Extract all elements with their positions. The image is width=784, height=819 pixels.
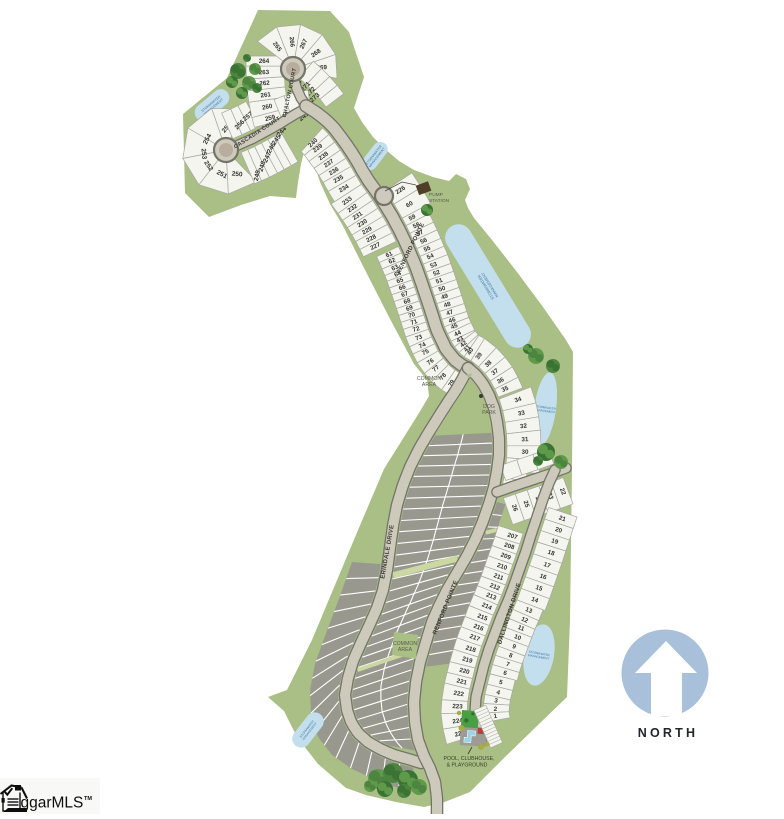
svg-text:STATION: STATION xyxy=(429,198,450,204)
svg-text:253: 253 xyxy=(200,148,208,160)
svg-text:31: 31 xyxy=(521,436,529,443)
svg-text:& PLAYGROUND: & PLAYGROUND xyxy=(447,763,488,769)
svg-text:PUMP: PUMP xyxy=(429,192,443,198)
svg-text:POOL, CLUBHOUSE,: POOL, CLUBHOUSE, xyxy=(443,756,494,762)
svg-text:223: 223 xyxy=(452,703,463,711)
svg-text:PARK: PARK xyxy=(482,410,496,416)
svg-text:AREA: AREA xyxy=(398,647,413,653)
svg-text:AREA: AREA xyxy=(422,382,437,388)
svg-text:266: 266 xyxy=(288,36,296,48)
svg-text:ggarMLS: ggarMLS xyxy=(21,795,84,812)
svg-text:261: 261 xyxy=(260,91,272,99)
svg-text:NORTH: NORTH xyxy=(638,726,698,740)
svg-text:30: 30 xyxy=(522,449,530,456)
svg-text:250: 250 xyxy=(231,171,243,179)
svg-text:264: 264 xyxy=(259,58,270,65)
svg-text:TM: TM xyxy=(84,796,92,802)
